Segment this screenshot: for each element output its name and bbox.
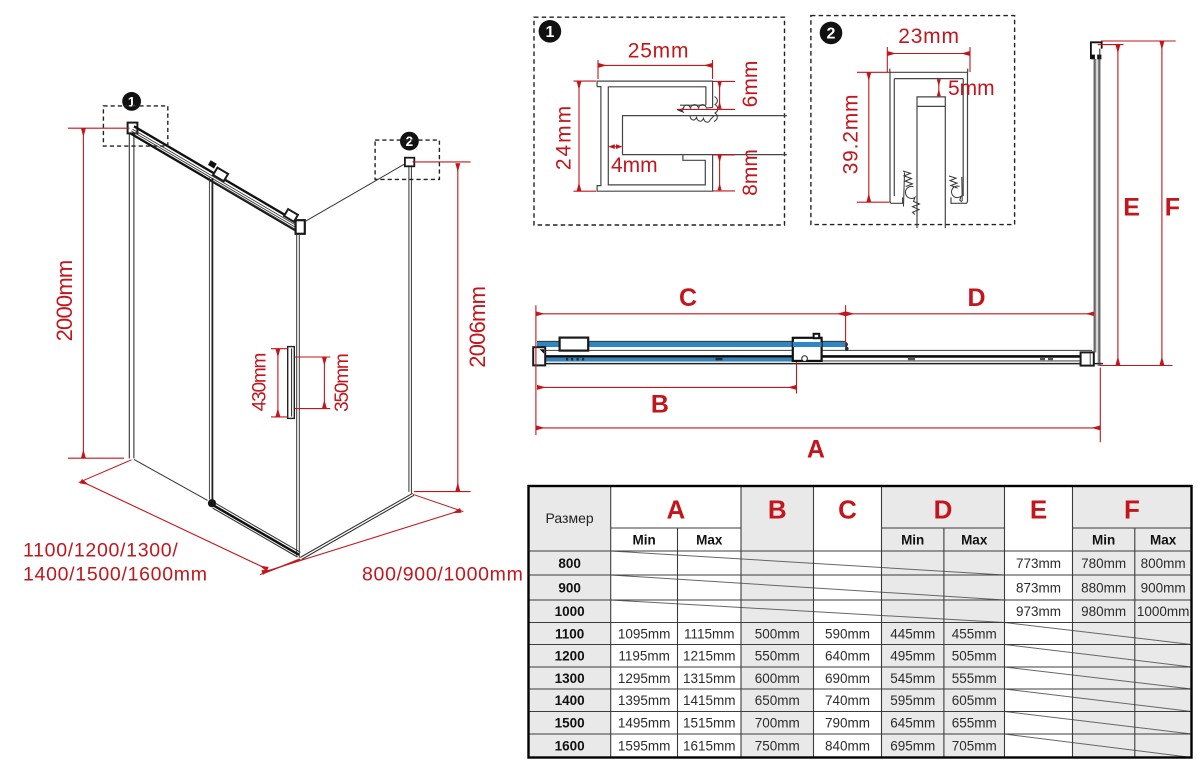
svg-text:1295mm: 1295mm <box>618 671 671 686</box>
svg-text:23mm: 23mm <box>898 25 960 48</box>
svg-text:880mm: 880mm <box>1081 580 1126 595</box>
svg-text:25mm: 25mm <box>628 40 690 63</box>
svg-text:1000mm: 1000mm <box>1137 604 1190 619</box>
svg-text:D: D <box>967 284 985 312</box>
svg-text:840mm: 840mm <box>825 739 870 754</box>
svg-text:550mm: 550mm <box>755 649 800 664</box>
svg-text:B: B <box>651 391 669 419</box>
svg-text:E: E <box>1030 495 1047 525</box>
svg-text:A: A <box>807 435 825 463</box>
svg-text:1115mm: 1115mm <box>684 626 735 641</box>
svg-text:800/900/1000mm: 800/900/1000mm <box>362 564 524 586</box>
svg-text:1495mm: 1495mm <box>618 716 671 731</box>
svg-text:1415mm: 1415mm <box>683 693 736 708</box>
svg-text:600mm: 600mm <box>755 671 800 686</box>
svg-text:640mm: 640mm <box>825 649 870 664</box>
svg-text:690mm: 690mm <box>825 671 870 686</box>
svg-text:545mm: 545mm <box>890 671 935 686</box>
svg-text:Min: Min <box>901 533 924 548</box>
svg-text:1100: 1100 <box>555 626 584 641</box>
svg-text:2006mm: 2006mm <box>465 287 490 368</box>
svg-text:800mm: 800mm <box>1141 556 1186 571</box>
svg-text:8mm: 8mm <box>739 149 762 196</box>
svg-text:1: 1 <box>128 94 136 109</box>
svg-text:605mm: 605mm <box>952 693 997 708</box>
svg-text:1600: 1600 <box>555 739 585 754</box>
svg-text:705mm: 705mm <box>952 739 997 754</box>
svg-text:1095mm: 1095mm <box>618 626 671 641</box>
svg-text:1195mm: 1195mm <box>618 649 670 664</box>
svg-text:750mm: 750mm <box>755 739 800 754</box>
svg-text:1595mm: 1595mm <box>618 739 671 754</box>
svg-text:900: 900 <box>558 580 581 595</box>
svg-text:873mm: 873mm <box>1016 580 1061 595</box>
svg-text:Max: Max <box>696 533 723 548</box>
svg-text:C: C <box>679 284 697 312</box>
svg-text:645mm: 645mm <box>890 716 935 731</box>
svg-text:4mm: 4mm <box>611 154 658 177</box>
svg-text:350mm: 350mm <box>332 354 353 412</box>
svg-text:Min: Min <box>1092 533 1115 548</box>
svg-text:790mm: 790mm <box>825 716 870 731</box>
svg-text:695mm: 695mm <box>890 739 935 754</box>
svg-text:6mm: 6mm <box>739 61 762 108</box>
svg-text:455mm: 455mm <box>952 626 997 641</box>
svg-text:780mm: 780mm <box>1081 556 1126 571</box>
svg-text:500mm: 500mm <box>755 626 800 641</box>
svg-text:445mm: 445mm <box>890 626 935 641</box>
svg-text:2: 2 <box>406 134 414 149</box>
svg-text:655mm: 655mm <box>952 716 997 731</box>
svg-text:2000mm: 2000mm <box>52 261 77 342</box>
svg-text:700mm: 700mm <box>755 716 800 731</box>
svg-text:A: A <box>666 495 685 525</box>
svg-text:980mm: 980mm <box>1081 604 1126 619</box>
svg-text:1100/1200/1300/: 1100/1200/1300/ <box>23 540 178 562</box>
svg-text:505mm: 505mm <box>952 649 997 664</box>
svg-text:555mm: 555mm <box>952 671 997 686</box>
svg-text:1515mm: 1515mm <box>683 716 736 731</box>
svg-text:D: D <box>934 495 953 525</box>
svg-text:1315mm: 1315mm <box>683 671 736 686</box>
svg-text:495mm: 495mm <box>890 649 935 664</box>
svg-text:1: 1 <box>545 24 554 41</box>
svg-text:1000: 1000 <box>555 604 585 619</box>
svg-text:1200: 1200 <box>555 649 585 664</box>
svg-text:1215mm: 1215mm <box>683 649 736 664</box>
svg-text:1500: 1500 <box>555 716 585 731</box>
svg-text:Min: Min <box>632 533 655 548</box>
svg-text:595mm: 595mm <box>890 693 935 708</box>
svg-text:1300: 1300 <box>555 671 585 686</box>
svg-text:430mm: 430mm <box>249 354 270 412</box>
svg-text:Max: Max <box>1150 533 1177 548</box>
svg-text:Размер: Размер <box>546 510 594 526</box>
svg-text:1400/1500/1600mm: 1400/1500/1600mm <box>23 564 208 586</box>
svg-text:773mm: 773mm <box>1016 556 1061 571</box>
svg-text:2: 2 <box>827 26 836 43</box>
svg-text:800: 800 <box>558 556 581 571</box>
svg-text:1395mm: 1395mm <box>618 693 671 708</box>
svg-text:39.2mm: 39.2mm <box>839 94 862 175</box>
svg-text:650mm: 650mm <box>755 693 800 708</box>
svg-text:F: F <box>1124 495 1140 525</box>
svg-text:5mm: 5mm <box>948 77 995 100</box>
svg-text:B: B <box>768 495 787 525</box>
svg-text:900mm: 900mm <box>1141 580 1186 595</box>
svg-text:973mm: 973mm <box>1016 604 1061 619</box>
svg-text:740mm: 740mm <box>825 693 870 708</box>
svg-text:590mm: 590mm <box>825 626 870 641</box>
svg-text:E: E <box>1123 193 1140 221</box>
svg-text:C: C <box>838 495 857 525</box>
svg-text:Max: Max <box>961 533 988 548</box>
svg-text:1615mm: 1615mm <box>683 739 736 754</box>
svg-text:1400: 1400 <box>555 693 585 708</box>
svg-text:24mm: 24mm <box>552 104 575 170</box>
svg-text:F: F <box>1165 193 1180 221</box>
